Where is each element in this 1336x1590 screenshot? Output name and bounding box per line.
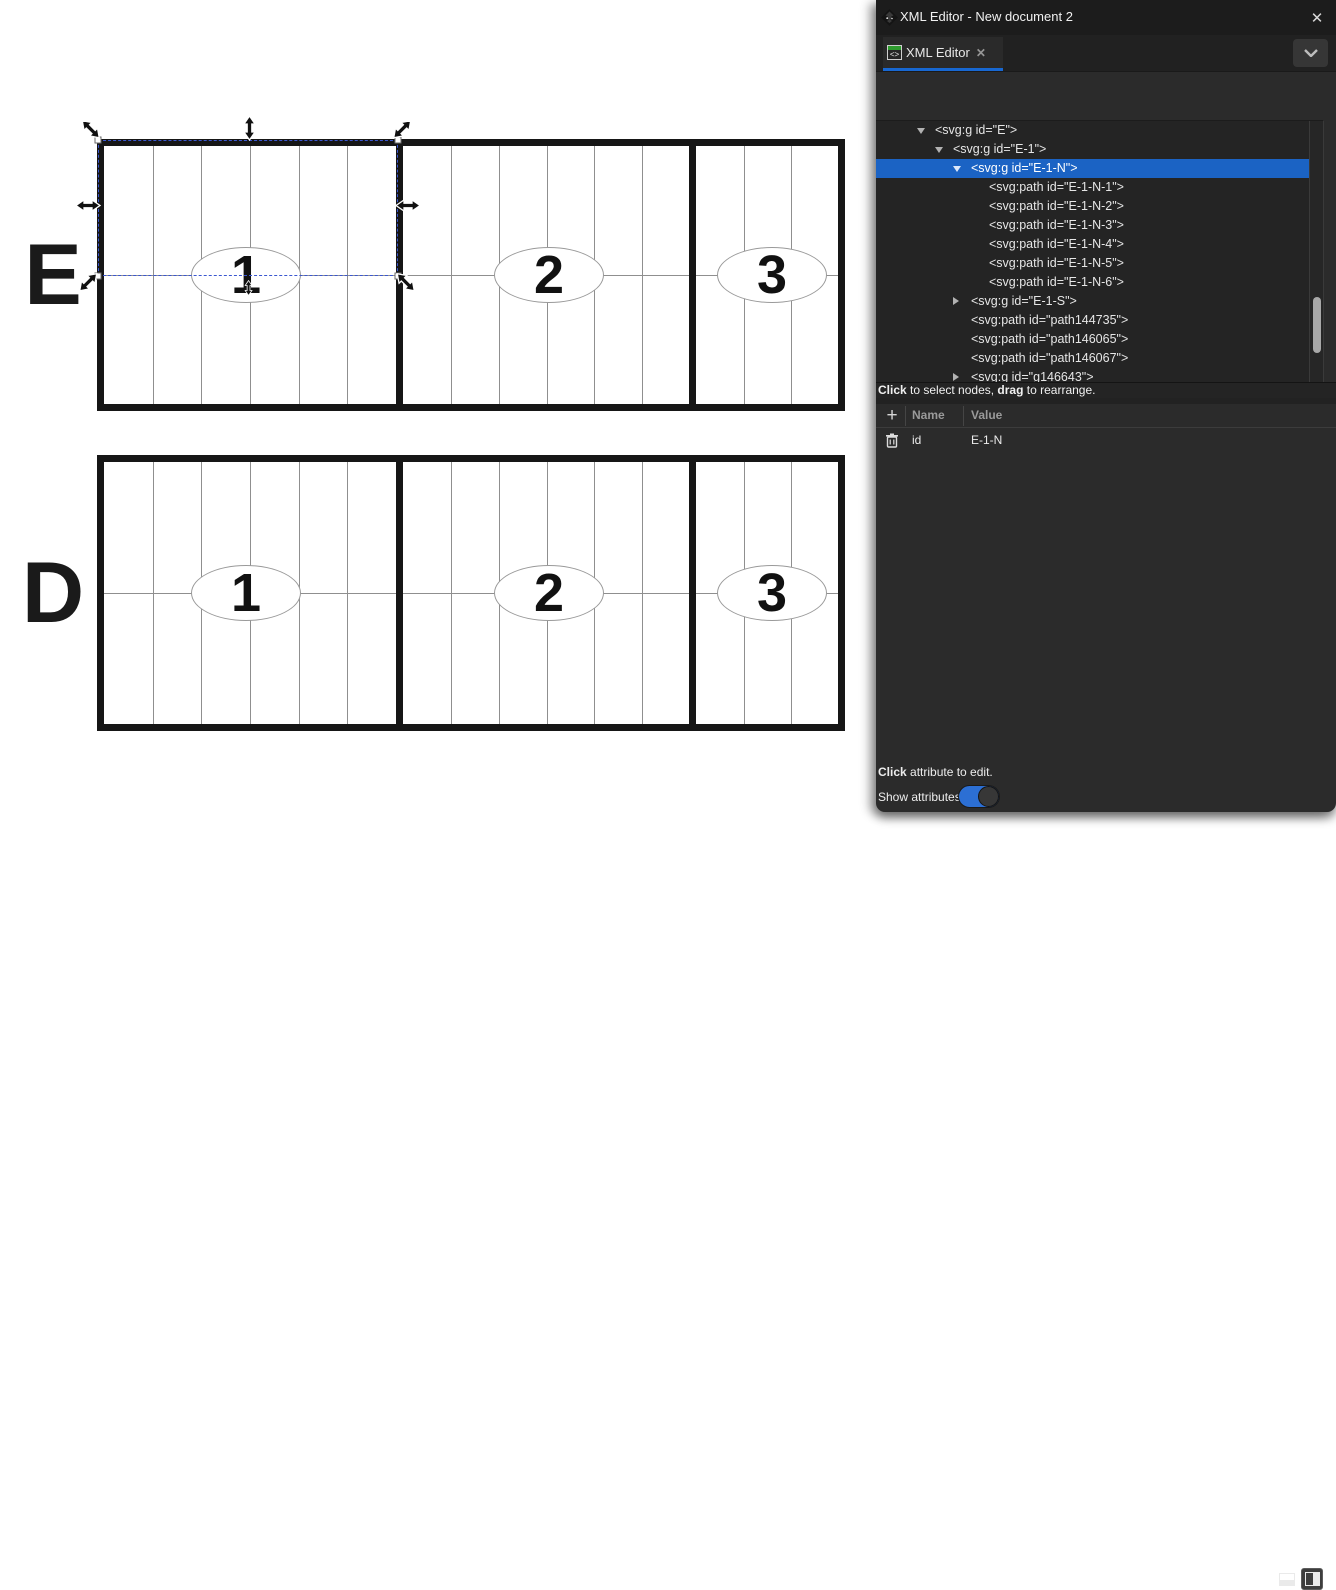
tree-node-label: <svg:path id="path144735"> bbox=[971, 313, 1128, 327]
active-tab-underline bbox=[883, 68, 1003, 71]
section-number: 2 bbox=[534, 566, 564, 620]
inkscape-logo-icon bbox=[881, 9, 898, 26]
attributes-header: + Name Value bbox=[876, 404, 1336, 428]
layout-rows-icon bbox=[1279, 1573, 1295, 1586]
panel-tabbar: <> XML Editor ✕ bbox=[876, 35, 1336, 72]
tree-node-label: <svg:path id="E-1-N-1"> bbox=[989, 180, 1124, 194]
row-label-E[interactable]: E bbox=[12, 139, 92, 411]
toggle-knob[interactable] bbox=[978, 786, 999, 807]
expander-closed-icon[interactable] bbox=[953, 297, 959, 305]
tree-node[interactable]: <svg:path id="E-1-N-5"> bbox=[876, 254, 1309, 273]
expander-closed-icon[interactable] bbox=[953, 373, 959, 381]
scale-handle-n[interactable] bbox=[238, 115, 256, 141]
tree-node[interactable]: <svg:g id="E-1-S"> bbox=[876, 292, 1309, 311]
expander-open-icon[interactable] bbox=[953, 166, 961, 172]
xml-toolbar: xml <>+ abc <>+ <> + <> ✕ bbox=[876, 72, 1336, 120]
panel-title: XML Editor - New document 2 bbox=[900, 9, 1073, 24]
section-number: 1 bbox=[231, 566, 261, 620]
tab-close-icon[interactable]: ✕ bbox=[976, 46, 986, 60]
show-attributes-label: Show attributes bbox=[878, 790, 961, 804]
tree-node-label: <svg:path id="E-1-N-4"> bbox=[989, 237, 1124, 251]
tree-scrollbar-track[interactable] bbox=[1309, 121, 1323, 382]
row-label-D[interactable]: D bbox=[12, 455, 92, 731]
expander-open-icon[interactable] bbox=[917, 128, 925, 134]
attributes-empty-area bbox=[876, 453, 1336, 764]
attr-col-name: Name bbox=[912, 408, 945, 422]
tree-node[interactable]: <svg:path id="E-1-N-6"> bbox=[876, 273, 1309, 292]
tree-node[interactable]: <svg:path id="E-1-N-2"> bbox=[876, 197, 1309, 216]
tree-node-label: <svg:g id="g146643"> bbox=[971, 370, 1094, 382]
section-ellipse[interactable]: 3 bbox=[717, 247, 827, 303]
layout-rows-button[interactable] bbox=[1276, 1568, 1298, 1590]
tree-node[interactable]: <svg:path id="path146067"> bbox=[876, 349, 1309, 368]
panel-menu-chevron-button[interactable] bbox=[1293, 39, 1328, 67]
section-ellipse[interactable]: 3 bbox=[717, 565, 827, 621]
attribute-row[interactable]: id E-1-N bbox=[876, 428, 1336, 453]
tree-node[interactable]: <svg:path id="E-1-N-4"> bbox=[876, 235, 1309, 254]
tree-node[interactable]: <svg:path id="E-1-N-3"> bbox=[876, 216, 1309, 235]
close-icon[interactable]: ✕ bbox=[1306, 7, 1328, 29]
xml-tree[interactable]: <svg:g id="E"><svg:g id="E-1"><svg:g id=… bbox=[876, 120, 1324, 382]
tab-xml-editor[interactable]: <> XML Editor ✕ bbox=[883, 37, 1003, 68]
layout-columns-button[interactable] bbox=[1301, 1568, 1323, 1590]
tree-node-selected[interactable]: <svg:g id="E-1-N"> bbox=[876, 159, 1309, 178]
section-ellipse[interactable]: 2 bbox=[494, 565, 604, 621]
section-ellipse[interactable]: 2 bbox=[494, 247, 604, 303]
tree-node-label: <svg:g id="E"> bbox=[935, 123, 1017, 137]
tree-node[interactable]: <svg:g id="E-1"> bbox=[876, 140, 1309, 159]
xml-editor-tab-icon: <> bbox=[887, 45, 902, 60]
tree-node-label: <svg:path id="E-1-N-3"> bbox=[989, 218, 1124, 232]
attribute-name[interactable]: id bbox=[912, 433, 921, 447]
section-number: 3 bbox=[757, 248, 787, 302]
drawing-canvas[interactable]: E123D123 bbox=[0, 0, 876, 820]
layout-columns-icon bbox=[1305, 1572, 1320, 1586]
scale-handle-s[interactable] bbox=[241, 280, 252, 296]
section-number: 2 bbox=[534, 248, 564, 302]
tree-scrollbar-thumb[interactable] bbox=[1313, 297, 1321, 353]
xml-editor-panel: XML Editor - New document 2 ✕ <> XML Edi… bbox=[876, 0, 1336, 812]
section-ellipse[interactable]: 1 bbox=[191, 565, 301, 621]
section-number: 3 bbox=[757, 566, 787, 620]
tree-node-label: <svg:path id="E-1-N-6"> bbox=[989, 275, 1124, 289]
tree-node-label: <svg:path id="path146067"> bbox=[971, 351, 1128, 365]
tree-node-label: <svg:path id="path146065"> bbox=[971, 332, 1128, 346]
tree-node[interactable]: <svg:path id="path144735"> bbox=[876, 311, 1309, 330]
attribute-edit-hint: Click attribute to edit. bbox=[876, 764, 1336, 782]
tree-node-label: <svg:g id="E-1-N"> bbox=[971, 161, 1078, 175]
expander-open-icon[interactable] bbox=[935, 147, 943, 153]
scale-handle-w[interactable] bbox=[75, 199, 101, 217]
show-attributes-row: Show attributes bbox=[876, 782, 1336, 812]
scale-handle-e[interactable] bbox=[395, 199, 421, 217]
chevron-down-icon bbox=[1304, 49, 1318, 57]
tree-node-label: <svg:path id="E-1-N-5"> bbox=[989, 256, 1124, 270]
attr-col-value: Value bbox=[971, 408, 1002, 422]
tree-node-label: <svg:g id="E-1"> bbox=[953, 142, 1046, 156]
selection-bbox-dashed bbox=[98, 140, 398, 276]
tree-node[interactable]: <svg:path id="E-1-N-1"> bbox=[876, 178, 1309, 197]
tree-node[interactable]: <svg:g id="E"> bbox=[876, 121, 1309, 140]
delete-attribute-trash-icon[interactable] bbox=[885, 433, 899, 448]
tree-node[interactable]: <svg:g id="g146643"> bbox=[876, 368, 1309, 382]
tree-node-label: <svg:g id="E-1-S"> bbox=[971, 294, 1077, 308]
tree-node-label: <svg:path id="E-1-N-2"> bbox=[989, 199, 1124, 213]
add-attribute-button[interactable]: + bbox=[882, 404, 902, 428]
tree-node[interactable]: <svg:path id="path146065"> bbox=[876, 330, 1309, 349]
tree-status-hint: Click to select nodes, drag to rearrange… bbox=[876, 382, 1336, 398]
tab-label: XML Editor bbox=[906, 45, 970, 60]
attribute-value[interactable]: E-1-N bbox=[971, 433, 1002, 447]
show-attributes-toggle[interactable] bbox=[958, 785, 1000, 808]
panel-titlebar[interactable]: XML Editor - New document 2 ✕ bbox=[876, 0, 1336, 35]
